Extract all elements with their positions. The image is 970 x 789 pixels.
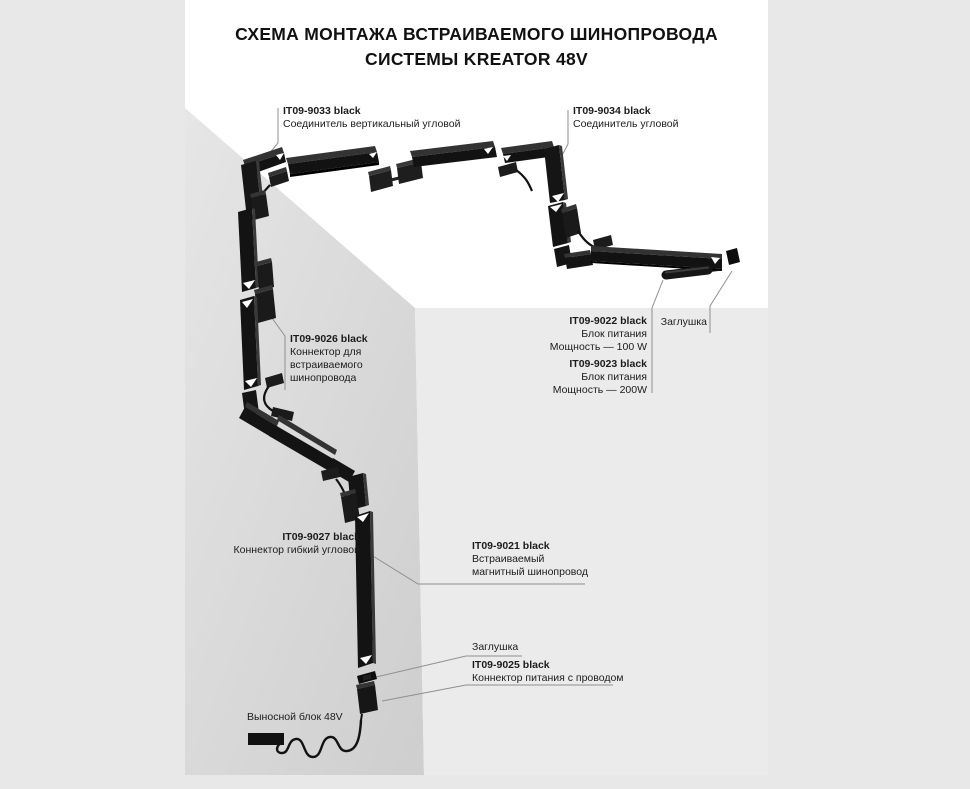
title-line-2: СИСТЕМЫ KREATOR 48V <box>185 47 768 72</box>
part-desc: Коннектор гибкий угловой <box>234 544 360 557</box>
label-it09-9033: IT09-9033 black Соединитель вертикальный… <box>283 105 460 131</box>
part-desc: Заглушка <box>472 641 518 654</box>
part-code: IT09-9033 black <box>283 105 460 118</box>
part-code: IT09-9021 black <box>472 540 588 553</box>
label-it09-9021: IT09-9021 black Встраиваемый магнитный ш… <box>472 540 588 579</box>
feed-connector-right-top <box>498 162 532 191</box>
left-wall <box>185 108 424 775</box>
title-line-1: СХЕМА МОНТАЖА ВСТРАИВАЕМОГО ШИНОПРОВОДА <box>185 22 768 47</box>
remote-psu-block <box>248 733 284 745</box>
label-it09-9025: IT09-9025 black Коннектор питания с пров… <box>472 659 624 685</box>
power-supply-unit <box>666 268 720 276</box>
part-code: IT09-9027 black <box>234 531 360 544</box>
part-code: IT09-9022 black <box>550 315 647 328</box>
part-desc: Коннектор для <box>290 346 368 359</box>
part-desc: Заглушка <box>661 316 707 329</box>
part-desc: Коннектор питания с проводом <box>472 672 624 685</box>
label-it09-9022: IT09-9022 black Блок питания Мощность — … <box>550 315 647 354</box>
part-code: IT09-9023 black <box>553 358 647 371</box>
label-plug-right: Заглушка <box>661 316 707 329</box>
part-desc: Мощность — 100 W <box>550 341 647 354</box>
track-segment-ceiling-1 <box>286 146 379 177</box>
page-title: СХЕМА МОНТАЖА ВСТРАИВАЕМОГО ШИНОПРОВОДА … <box>185 22 768 72</box>
part-desc: Блок питания <box>553 371 647 384</box>
label-plug-bottom: Заглушка <box>472 641 518 654</box>
part-desc: шинопровода <box>290 372 368 385</box>
part-desc: Встраиваемый <box>472 553 588 566</box>
right-wall-track-run <box>548 202 740 275</box>
part-code: IT09-9025 black <box>472 659 624 672</box>
end-cap-right <box>726 248 740 265</box>
part-code: IT09-9026 black <box>290 333 368 346</box>
track-segment-ceiling-2 <box>410 141 497 167</box>
part-desc: встраиваемого <box>290 359 368 372</box>
part-desc: Мощность — 200W <box>553 384 647 397</box>
label-remote-block: Выносной блок 48V <box>247 711 343 724</box>
part-code: IT09-9034 black <box>573 105 678 118</box>
part-desc: магнитный шинопровод <box>472 566 588 579</box>
part-desc: Соединитель угловой <box>573 118 678 131</box>
label-it09-9027: IT09-9027 black Коннектор гибкий угловой <box>234 531 360 557</box>
feed-connector-right-mid <box>561 204 613 250</box>
part-desc: Соединитель вертикальный угловой <box>283 118 460 131</box>
part-desc: Блок питания <box>550 328 647 341</box>
label-it09-9026: IT09-9026 black Коннектор для встраиваем… <box>290 333 368 385</box>
part-desc: Выносной блок 48V <box>247 711 343 724</box>
corner-connector-bottom-right <box>554 245 593 269</box>
label-it09-9023: IT09-9023 black Блок питания Мощность — … <box>553 358 647 397</box>
label-it09-9034: IT09-9034 black Соединитель угловой <box>573 105 678 131</box>
diagram-area: СХЕМА МОНТАЖА ВСТРАИВАЕМОГО ШИНОПРОВОДА … <box>185 0 768 775</box>
